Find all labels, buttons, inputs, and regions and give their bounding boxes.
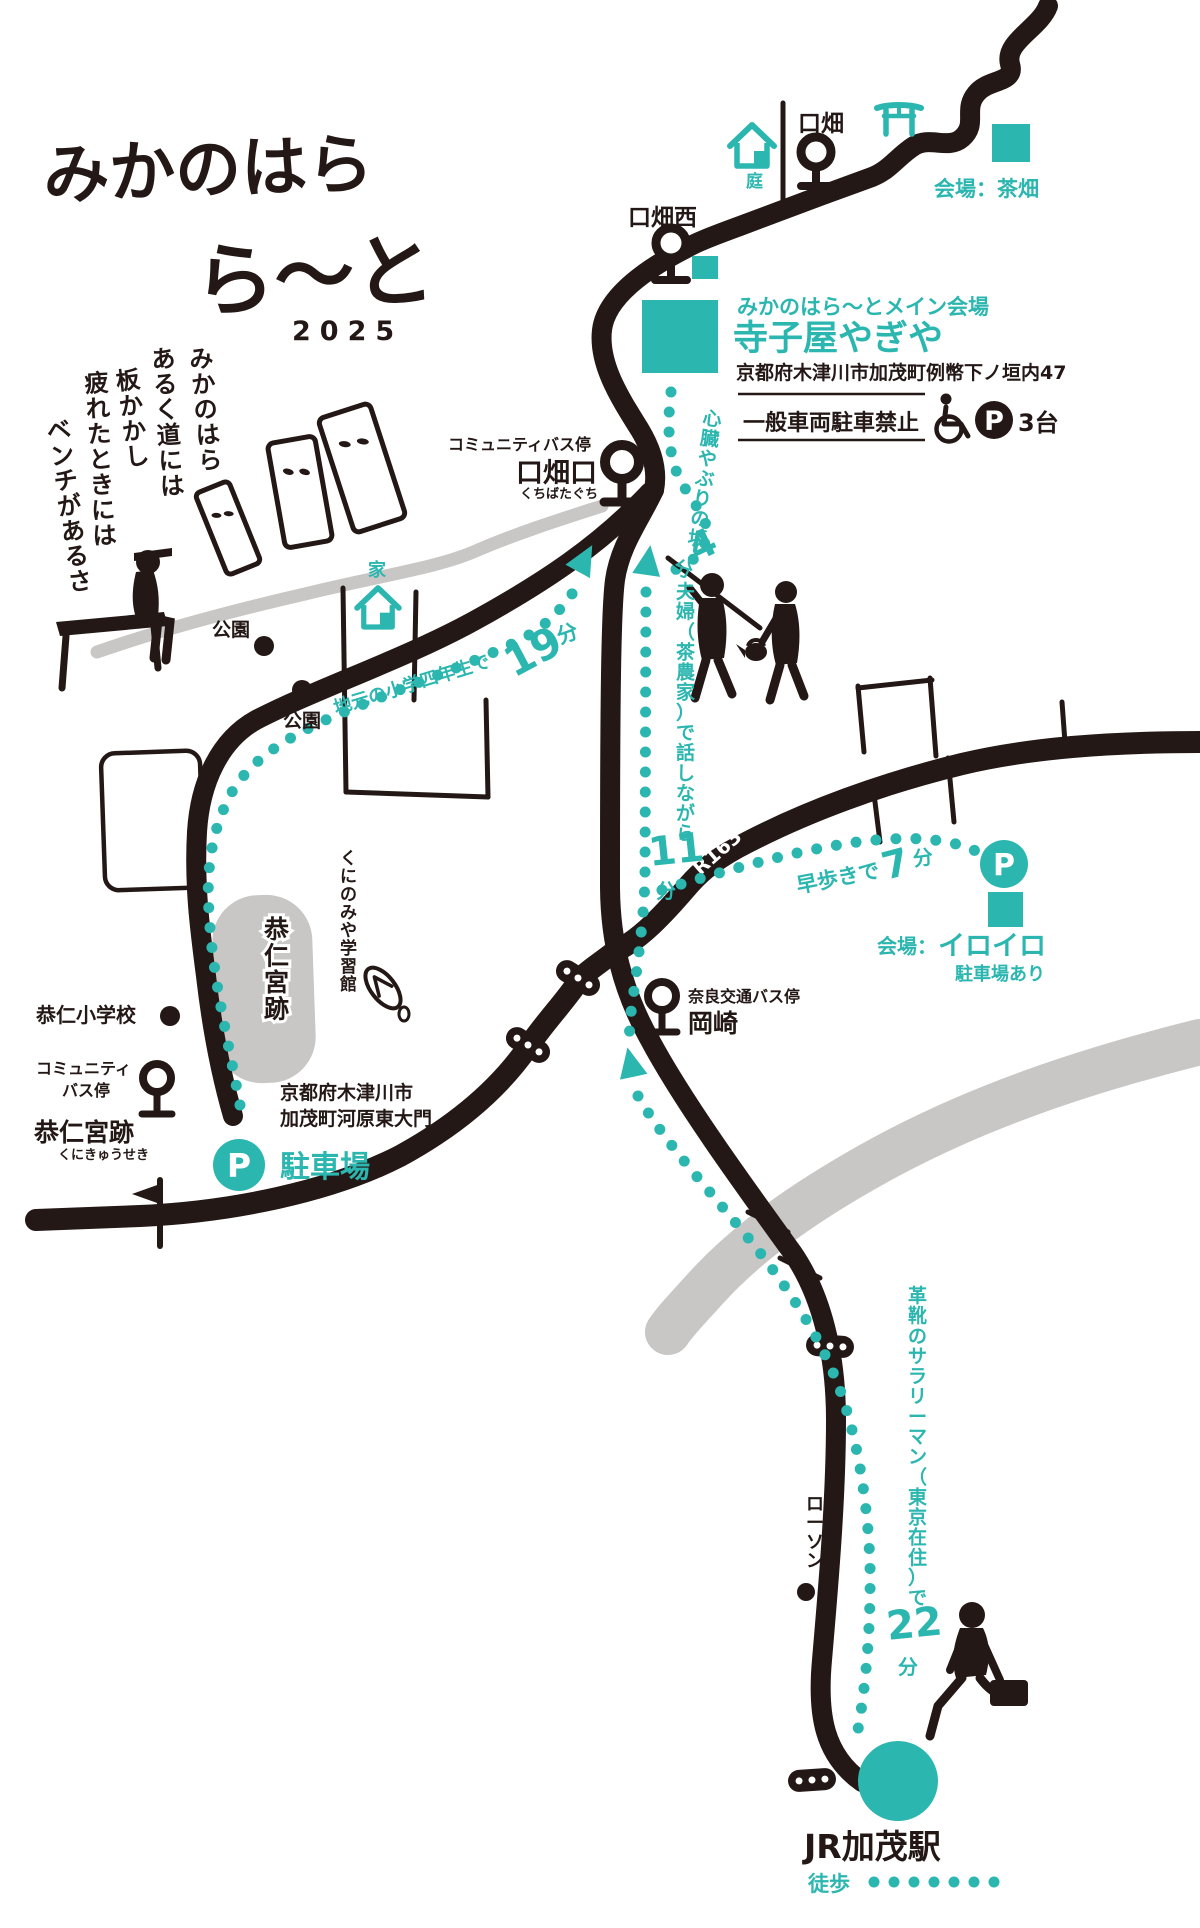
parking-label: 駐車場: [280, 1150, 370, 1185]
pebble-icon: [399, 1007, 409, 1021]
iroiro-parking-note: 駐車場あり: [955, 963, 1045, 985]
bus-stop-icon-kuchibataguchi: [604, 445, 640, 502]
main-venue-name: 寺子屋やぎや: [733, 319, 943, 359]
logo-line1: みかのはら: [42, 126, 374, 214]
lawson-dot: [797, 1583, 815, 1601]
map-canvas: R163: [0, 0, 1200, 1928]
main-venue-tag: みかのはら〜とメイン会場: [737, 295, 989, 319]
bus-stop-icon-kunikyuseki: [142, 1064, 172, 1114]
poem-col: あるく道には: [150, 344, 185, 500]
stop-kana-kuchibataguchi: くちばたぐち: [520, 487, 598, 502]
stop-type-kuchibataguchi: コミュニティバス停: [448, 435, 591, 454]
parking-p: P: [993, 848, 1015, 883]
label-park2: 公園: [283, 710, 321, 732]
logo: みかのはら ら〜と 2025: [42, 126, 437, 347]
no-parking-note: 一般車両駐車禁止 P 3台: [738, 394, 1059, 442]
route-minutes: 7: [877, 839, 914, 888]
poem-col: ベンチがあるさ: [45, 415, 94, 597]
label-ie: 家: [368, 559, 387, 581]
logo-line2: ら〜と: [192, 224, 437, 329]
school-dot: [160, 1006, 180, 1026]
route-label-text: 夫婦（茶農家）で話しながら: [675, 581, 696, 845]
route-22min-label: 革靴のサラリーマン（東京在住）で 22 分: [884, 1284, 944, 1679]
stop-name-kunikyuseki: 恭仁宮跡: [33, 1118, 134, 1147]
parking-p: P: [984, 406, 1004, 437]
iroiro-label-prefix: 会場：: [877, 934, 937, 958]
station-label: JR加茂駅: [802, 1827, 941, 1866]
parking-count: 3台: [1018, 409, 1059, 437]
logo-year: 2025: [292, 316, 403, 347]
walk-label: 徒歩: [807, 1872, 850, 1896]
house-icon-niwa: [730, 125, 774, 166]
event-map-poster: R163: [0, 0, 1200, 1928]
stop-name-okazaki: 岡崎: [688, 1009, 738, 1038]
main-venue-address: 京都府木津川市加茂町例幣下ノ垣内47: [736, 361, 1066, 384]
chabatake-venue-square: [992, 124, 1030, 162]
route-label-text: 早歩きで: [794, 858, 881, 898]
stop-type2-kunikyuseki: バス停: [62, 1081, 110, 1100]
chabatake-label: 会場：茶畑: [934, 177, 1039, 201]
label-niwa: 庭: [746, 171, 763, 192]
poem-col: 疲れたときには: [84, 369, 117, 551]
house-icon-ie: [357, 588, 399, 627]
kunimiya-label: くにのみや学習館: [339, 849, 357, 995]
label-park1: 公園: [212, 619, 250, 641]
park-dot: [292, 680, 312, 700]
stop-type1-kunikyuseki: コミュニティ: [36, 1059, 131, 1078]
no-parking-label: 一般車両駐車禁止: [743, 410, 919, 436]
route-11min-label: 夫婦（茶農家）で話しながら 11 分: [646, 581, 706, 903]
main-venue-square: [642, 300, 718, 373]
park-dot: [254, 636, 274, 656]
route-unit: 分: [656, 879, 676, 903]
iroiro-parking-icon: P: [980, 840, 1028, 888]
route-label-text: 革靴のサラリーマン（東京在住）で: [908, 1284, 927, 1609]
iroiro-name: イロイロ: [938, 931, 1046, 962]
poem-col: 板かかし: [114, 365, 152, 472]
scarecrow-icon: [318, 403, 406, 534]
road-to-station: [610, 490, 862, 1782]
route-minutes: 11: [646, 824, 706, 876]
route-arrow: [632, 543, 664, 577]
wheelchair-icon: [937, 394, 969, 442]
scarecrow-icon: [195, 480, 261, 575]
businessman-icon: [930, 1602, 1028, 1736]
lawson-label: ローソン: [806, 1494, 824, 1572]
ruins-label: 恭仁宮跡: [263, 915, 290, 1024]
stop-label-kuchibata-nishi: 口畑西: [628, 205, 697, 231]
station-circle: [858, 1741, 938, 1821]
iroiro-venue-square: [988, 892, 1023, 927]
stop-name-kuchibataguchi: 口畑口: [516, 458, 597, 489]
stop-label-kuchibata: 口畑: [798, 111, 844, 137]
parking-p: P: [227, 1146, 251, 1185]
bus-stop-icon-kuchibata: [801, 137, 831, 186]
railroad-crossing-icon: [787, 1767, 836, 1792]
stop-type-okazaki: 奈良交通バス停: [687, 987, 800, 1006]
main-parking-icon: P: [213, 1139, 265, 1191]
route-minutes: 22: [884, 1598, 944, 1650]
scarecrow-icon: [267, 436, 333, 549]
parking-address-line2: 加茂町河原東大門: [279, 1107, 432, 1130]
stop-kana-kunikyuseki: くにきゅうせき: [58, 1148, 149, 1163]
small-venue-square: [692, 256, 718, 279]
route-unit: 分: [911, 844, 934, 871]
poem-col: みかのはら: [188, 344, 223, 475]
school-label: 恭仁小学校: [35, 1003, 137, 1027]
parking-address-line1: 京都府木津川市: [280, 1081, 413, 1104]
route-4min-label: 心臓やぶりの坂 4 分: [670, 407, 724, 583]
sandal-icon: [359, 962, 407, 1015]
route-arrow: [614, 1044, 648, 1079]
torii-icon: [877, 105, 921, 134]
route-unit: 分: [898, 1655, 918, 1679]
